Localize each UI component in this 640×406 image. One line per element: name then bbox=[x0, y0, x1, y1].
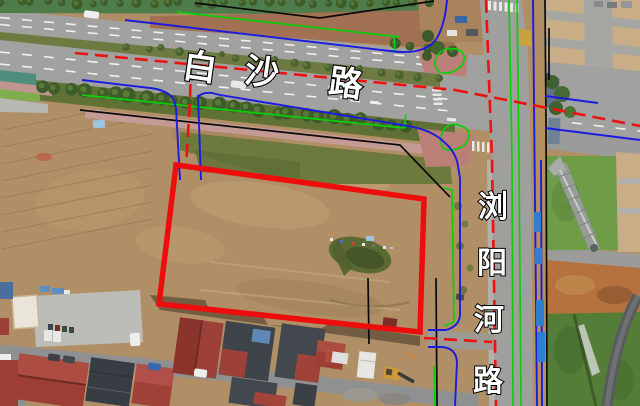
liuyanghe-char-2: 阳 bbox=[477, 246, 507, 281]
satellite-map-image: 白 沙 路 浏 阳 河 路 bbox=[0, 0, 640, 406]
baisha-char-1: 白 bbox=[180, 46, 219, 90]
liuyanghe-char-4: 路 bbox=[473, 364, 504, 399]
baisha-char-2: 沙 bbox=[242, 51, 281, 95]
liuyanghe-char-3: 河 bbox=[474, 303, 504, 338]
liuyanghe-char-1: 浏 bbox=[478, 190, 508, 225]
map-canvas: 白 沙 路 浏 阳 河 路 bbox=[0, 0, 640, 406]
southeast-lawn bbox=[546, 260, 640, 406]
baisha-char-3: 路 bbox=[326, 62, 366, 106]
